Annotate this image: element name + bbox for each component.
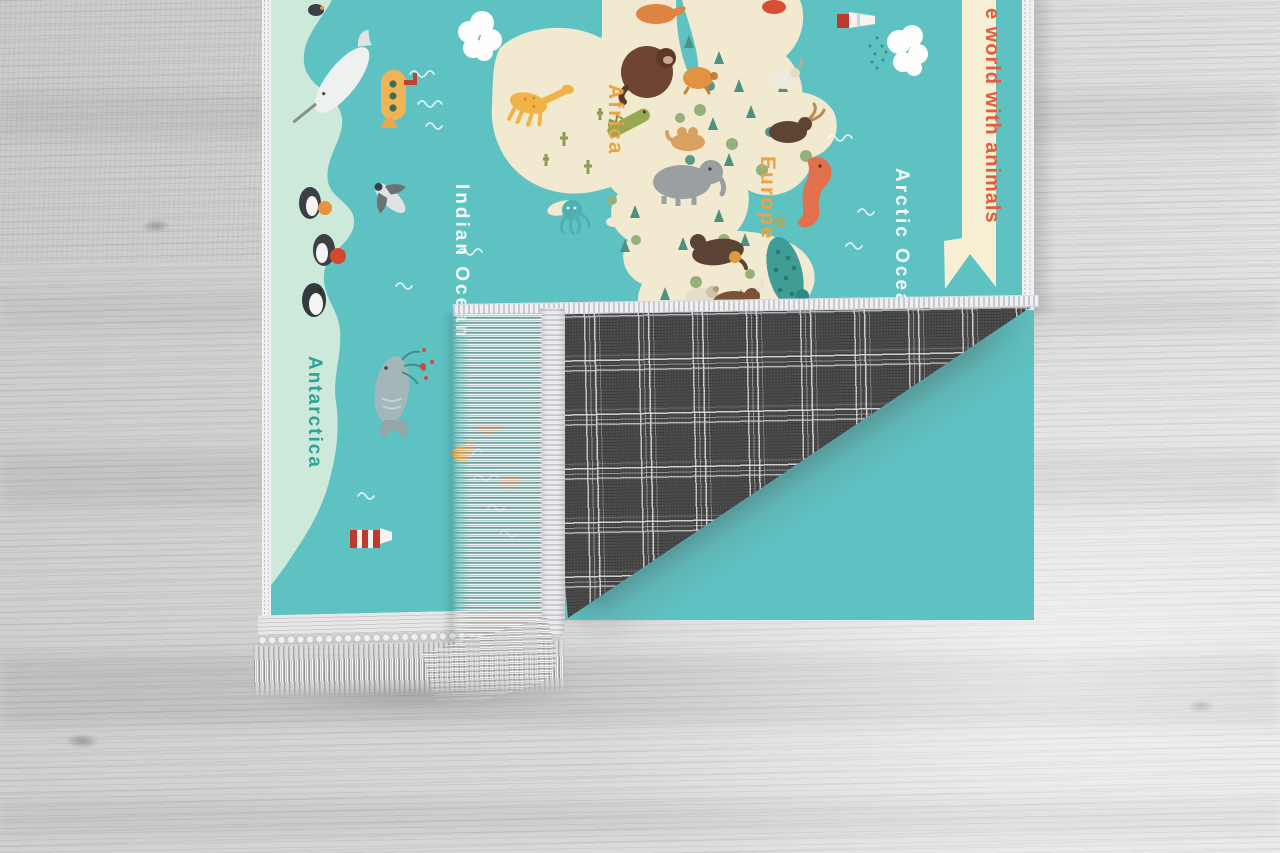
ribbon-text: e world with animals bbox=[981, 8, 1003, 224]
label-africa: Africa bbox=[604, 84, 627, 156]
island bbox=[606, 217, 622, 227]
right-edge-binding bbox=[1022, 0, 1034, 310]
label-antarctica: Antarctica bbox=[304, 356, 325, 469]
left-edge-binding bbox=[262, 0, 271, 620]
folded-fringe-band bbox=[540, 308, 565, 636]
label-europe: Europe bbox=[756, 156, 779, 240]
bird-icon bbox=[762, 0, 786, 14]
penguin-icon bbox=[302, 283, 326, 317]
folded-corner-fringe bbox=[452, 313, 542, 653]
rug-right-shadow bbox=[1031, 0, 1055, 314]
puffin-icon bbox=[308, 4, 324, 16]
product-photo-scene: Africa Europe Indian Ocean Arctic Ocean … bbox=[0, 0, 1280, 853]
